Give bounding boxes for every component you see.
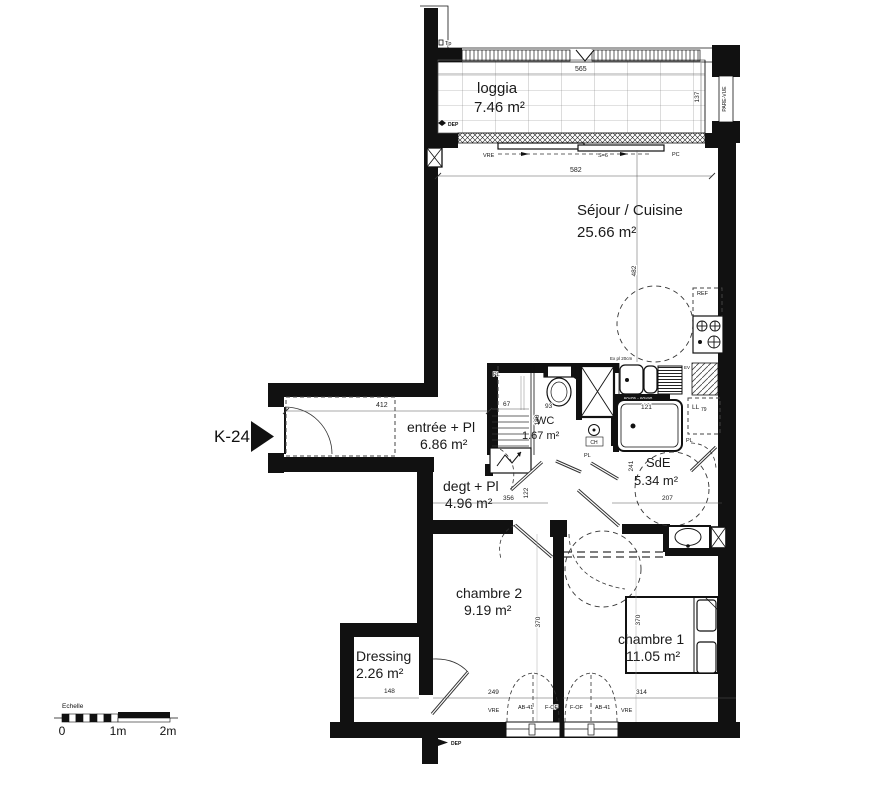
sink-bowl [644, 366, 657, 393]
win-label: AB-41 [595, 705, 610, 711]
dim-degt-width: 356 [503, 495, 514, 502]
room-label-wc: WC [536, 415, 554, 427]
pillow-icon [697, 642, 716, 673]
scale-1m: 1m [110, 724, 127, 738]
room-label-chambre1: chambre 1 [618, 631, 684, 647]
dim-ch1-width: 314 [636, 689, 647, 696]
dim-wc-width: 93 [545, 403, 553, 410]
dep-label: DEP [448, 122, 459, 128]
win-label: VRE [621, 708, 633, 714]
scale-title: Echelle [62, 703, 84, 710]
sliding-panel [578, 145, 664, 151]
pc-label: PC [672, 152, 680, 158]
win-label: F-OF [570, 705, 583, 711]
washer-size: 79 [701, 407, 707, 413]
tp-label: Tp [445, 41, 451, 47]
washbasin-icon [675, 529, 701, 546]
dim-shower-width: 121 [641, 404, 652, 411]
room-label-sejour: Séjour / Cuisine [577, 202, 683, 219]
vre-label: VRE [483, 153, 495, 159]
room-area-loggia: 7.46 m² [474, 99, 525, 116]
dim-loggia-width: 565 [575, 66, 587, 73]
closet-label: PL [493, 372, 500, 378]
faucet-dot [625, 378, 629, 382]
room-label-chambre2: chambre 2 [456, 585, 522, 601]
room-label-degt: degt + Pl [443, 478, 499, 494]
s6-label: S=6 [598, 153, 608, 159]
room-label-sde: SdE [646, 455, 671, 470]
room-area-sde: 5.34 m² [634, 473, 679, 488]
sink-label: EV [684, 365, 690, 370]
dep-label: DEP [451, 741, 462, 747]
shower-drain [631, 424, 636, 429]
pl-label: PL [584, 453, 591, 459]
sliding-panel [498, 143, 584, 149]
room-area-entree: 6.86 m² [420, 436, 468, 452]
room-label-dressing: Dressing [356, 648, 411, 664]
win-label: F-OF [545, 705, 558, 711]
scale-checker [62, 714, 118, 722]
dim-entree-width: 412 [376, 402, 388, 409]
floor-plan: PARE-VUE loggia 7.46 m² 565 137 Tp DEP V… [0, 0, 891, 786]
dim-sejour-width: 582 [570, 167, 582, 174]
room-area-dressing: 2.26 m² [356, 665, 404, 681]
dim-degt-height: 122 [523, 487, 530, 498]
dim-sde-height: 241 [628, 460, 635, 471]
room-area-sejour: 25.66 m² [577, 224, 636, 241]
room-label-loggia: loggia [477, 80, 518, 97]
win-label: VRE [488, 708, 500, 714]
sliding-bay-window [458, 133, 705, 143]
sink-bowl [620, 365, 643, 394]
dim-loggia-depth: 137 [694, 91, 701, 102]
exhaust-note: Ex pl 20cm [610, 356, 633, 361]
dim-ch2-height: 370 [535, 616, 542, 627]
win-label: AB-41 [518, 705, 533, 711]
room-area-chambre1: 11.05 m² [626, 648, 681, 664]
loggia-railing [592, 50, 700, 61]
room-label-entree: entrée + Pl [407, 419, 475, 435]
cooktop-icon [693, 316, 723, 353]
room-area-wc: 1.67 m² [522, 430, 560, 442]
fridge-label: REF [697, 291, 709, 297]
burner-dot [698, 340, 702, 344]
dim-ch2-width: 249 [488, 689, 499, 696]
worktop-hatch [692, 363, 718, 395]
dim-pl-width: 67 [503, 401, 511, 408]
loggia-railing [462, 50, 570, 61]
sink-drainer [658, 366, 682, 394]
scale-0: 0 [59, 724, 66, 738]
washer-label: LL [692, 404, 700, 411]
scale-2m: 2m [160, 724, 177, 738]
dim-sejour-height: 482 [631, 265, 638, 276]
toilet-tank [544, 366, 575, 377]
dim-ch1-height: 370 [635, 614, 642, 625]
scale-solid [118, 712, 170, 718]
water-heater-label: CH [590, 440, 598, 446]
dim-sde-width: 207 [662, 495, 673, 502]
unit-label: K-24 [214, 427, 250, 446]
dim-dressing-width: 148 [384, 688, 395, 695]
pare-vue-label: PARE-VUE [722, 86, 728, 112]
room-area-chambre2: 9.19 m² [464, 602, 512, 618]
